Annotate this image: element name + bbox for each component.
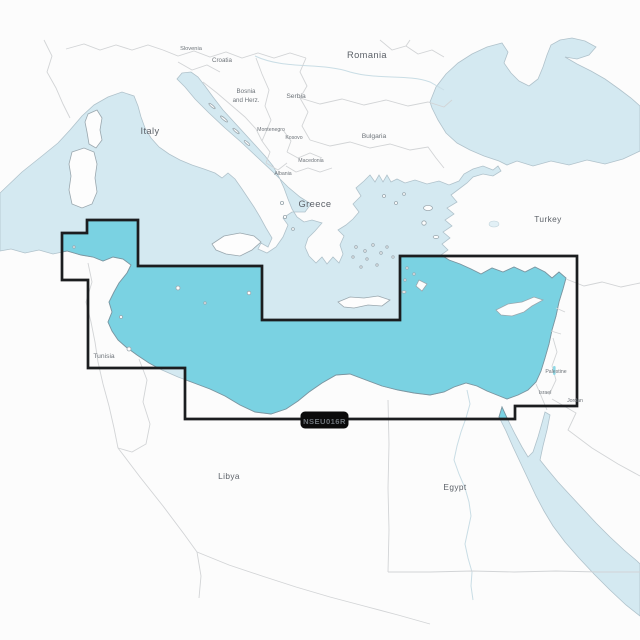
border-romania-bulgaria (300, 98, 452, 107)
region-code-badge: NSEU016R (301, 412, 349, 429)
black-sea (430, 38, 640, 166)
cyclades-island-7 (386, 246, 388, 248)
ionian-island-2 (283, 215, 286, 218)
kerkennah-island (120, 316, 123, 319)
border-alps (66, 44, 163, 50)
border-serbia-romania (300, 58, 307, 98)
border-serbia-bulgaria (300, 98, 310, 140)
djerba-island (127, 347, 131, 351)
country-label-bulgaria: Bulgaria (362, 133, 387, 140)
dodecanese-island-1 (406, 267, 408, 269)
country-label-romania: Romania (347, 50, 387, 60)
cyclades-island-2 (364, 250, 367, 253)
north-aegean-island-2 (395, 202, 398, 205)
nile-river (454, 390, 473, 600)
badge-code-text: NSEU016R (303, 417, 346, 426)
border-libya-egypt (388, 400, 389, 572)
country-label-croatia: Croatia (212, 57, 233, 64)
anatolia-lake (489, 221, 499, 227)
red-sea (499, 407, 640, 616)
border-niger-chad (197, 552, 201, 598)
border-greece-north (286, 166, 332, 172)
ionian-island-1 (280, 201, 283, 204)
north-aegean-island-1 (383, 195, 386, 198)
border-libya-niger-chad (197, 552, 430, 624)
sardinia-island (69, 148, 97, 208)
country-label-greece: Greece (299, 199, 332, 209)
dodecanese-island-2 (413, 273, 415, 275)
country-label-libya: Libya (218, 471, 240, 481)
danube-river (255, 56, 444, 90)
country-label-montenegro: Montenegro (257, 127, 285, 133)
north-aegean-island-3 (403, 193, 406, 196)
border-jordan-saudi (552, 399, 640, 476)
map-canvas: Italy Slovenia Croatia Bosnia and Herz. … (0, 0, 640, 640)
country-label-serbia: Serbia (286, 93, 306, 100)
cyclades-island-1 (355, 246, 358, 249)
lampedusa-island (204, 302, 206, 304)
border-moldova (380, 40, 444, 57)
country-label-tunisia: Tunisia (93, 353, 115, 360)
country-label-turkey: Turkey (534, 214, 562, 224)
dodecanese-island-3 (404, 279, 406, 281)
cyclades-island-10 (376, 264, 378, 266)
border-kosovo (283, 130, 291, 152)
chios-island (422, 221, 426, 225)
cyclades-island-8 (392, 256, 394, 258)
country-label-bosnia-line1: Bosnia (237, 88, 256, 95)
border-bulgaria-greece-turkey (310, 140, 444, 168)
country-label-palestine: Palestine (545, 369, 566, 375)
cyclades-island-4 (380, 252, 383, 255)
karpathos-island (402, 291, 406, 293)
border-ukraine (406, 40, 410, 46)
country-label-albania: Albania (274, 171, 291, 177)
country-label-macedonia: Macedonia (298, 158, 323, 164)
galite-island (73, 246, 75, 248)
country-label-israel: Israel (539, 390, 552, 396)
cyclades-island-3 (372, 244, 375, 247)
country-label-slovenia: Slovenia (180, 46, 203, 52)
cyclades-island-5 (366, 258, 368, 260)
country-label-jordan: Jordan (567, 398, 583, 404)
border-tunisia-libya (118, 359, 150, 452)
samos-island (433, 236, 439, 239)
cyclades-island-6 (352, 256, 354, 258)
country-label-italy: Italy (140, 126, 159, 136)
country-label-bosnia-line2: and Herz. (233, 97, 260, 104)
pantelleria-island (176, 286, 180, 290)
ionian-island-3 (292, 228, 295, 231)
border-france-italy (44, 40, 70, 118)
border-algeria-libya (118, 448, 197, 552)
country-label-kosovo: Kosovo (285, 135, 302, 141)
border-lebanon-israel (551, 331, 561, 334)
cyclades-island-9 (360, 266, 362, 268)
chart-coverage-image: Italy Slovenia Croatia Bosnia and Herz. … (0, 0, 640, 640)
country-label-egypt: Egypt (443, 482, 467, 492)
lesbos-island (424, 205, 433, 210)
malta-island (247, 291, 251, 295)
border-israel-jordan (549, 338, 557, 395)
